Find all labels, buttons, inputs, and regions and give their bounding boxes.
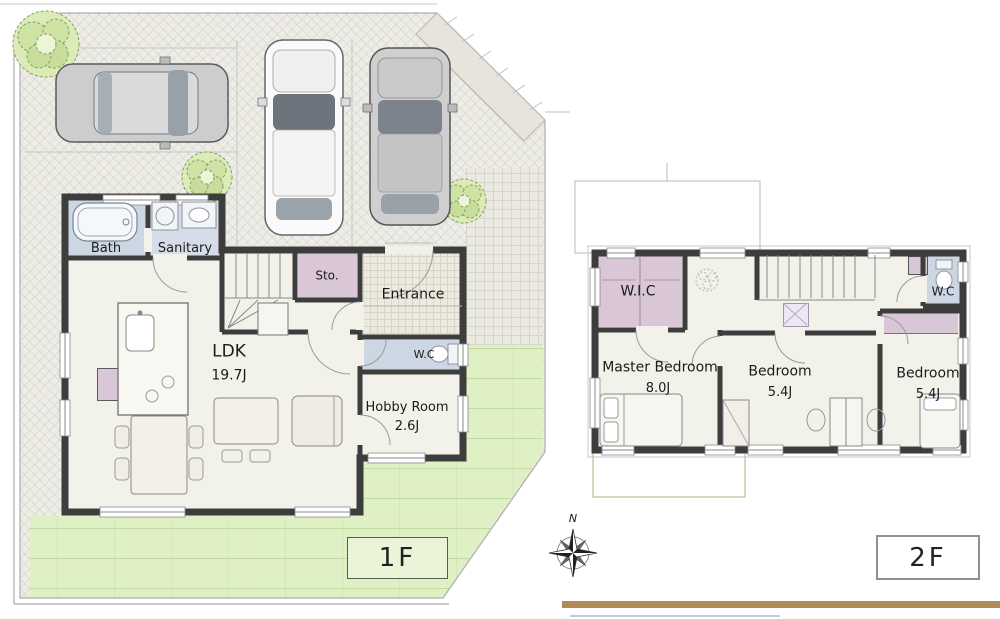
room-wc2-label: W.C <box>932 285 955 298</box>
room-bedroom-right-label: Bedroom <box>896 366 959 381</box>
room-ldk-size: 19.7J <box>211 368 246 383</box>
room-storage-label: Sto. <box>315 269 338 282</box>
floor-plan-canvas: Bath Sanitary Sto. Entrance W.C LDK 19.7… <box>0 0 1000 619</box>
room-ldk-label: LDK <box>212 343 246 362</box>
room-bedroom-right-size: 5.4J <box>916 388 941 402</box>
plan-linework <box>0 0 1000 619</box>
room-master-label: Master Bedroom <box>602 360 718 375</box>
car-gray-vertical <box>363 48 457 225</box>
compass-north-label: N <box>569 513 577 525</box>
compass-rose <box>549 529 597 577</box>
room-hobby-size: 2.6J <box>395 420 420 434</box>
room-wc1-label: W.C <box>414 349 435 361</box>
accent-underline <box>570 615 780 617</box>
skylight-cross <box>783 303 807 325</box>
floor2-tag: 2F <box>876 535 980 580</box>
room-sanitary-label: Sanitary <box>158 242 212 256</box>
floor1-tag: 1F <box>347 537 448 579</box>
car-gray-horizontal <box>56 57 228 149</box>
car-white-vertical <box>258 40 350 235</box>
room-master-size: 8.0J <box>646 382 671 396</box>
door-gaps-2f <box>636 276 927 366</box>
room-bedroom-center-label: Bedroom <box>748 364 811 379</box>
stairs-2f <box>757 255 875 300</box>
room-wic-label: W.I.C <box>620 284 655 299</box>
room-bedroom-center-size: 5.4J <box>768 386 793 400</box>
furniture-1f <box>73 202 462 494</box>
room-hobby-label: Hobby Room <box>365 401 448 415</box>
accent-bar <box>562 601 1000 608</box>
room-entrance-label: Entrance <box>382 287 445 302</box>
room-bath-label: Bath <box>91 242 121 256</box>
